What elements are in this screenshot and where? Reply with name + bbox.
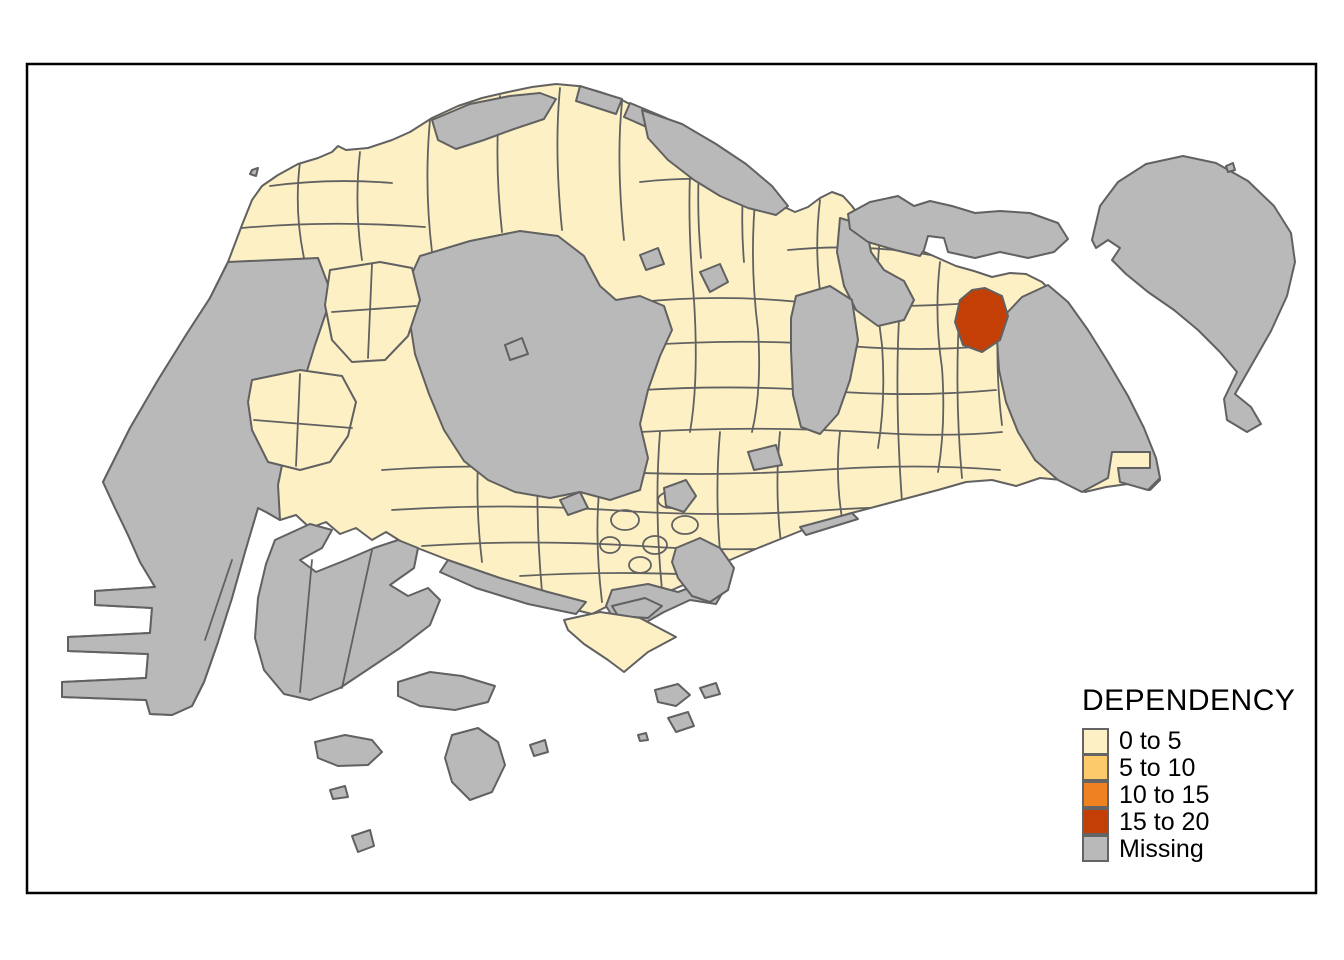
legend-item: Missing <box>1082 836 1330 863</box>
legend-label: Missing <box>1119 836 1204 863</box>
screenshot-root: DEPENDENCY 0 to 5 5 to 10 10 to 15 15 to… <box>0 0 1344 960</box>
legend-rows: 0 to 5 5 to 10 10 to 15 15 to 20 Missing <box>1082 728 1330 863</box>
legend-label: 10 to 15 <box>1119 782 1209 809</box>
legend-label: 5 to 10 <box>1119 755 1195 782</box>
island-sudong <box>315 735 382 766</box>
legend-item: 0 to 5 <box>1082 728 1330 755</box>
legend-label: 0 to 5 <box>1119 728 1182 755</box>
legend-swatch-15-20 <box>1082 808 1109 835</box>
legend-swatch-5-10 <box>1082 754 1109 781</box>
legend-label: 15 to 20 <box>1119 809 1209 836</box>
legend-item: 15 to 20 <box>1082 809 1330 836</box>
legend-swatch-missing <box>1082 835 1109 862</box>
legend-swatch-10-15 <box>1082 781 1109 808</box>
legend-item: 10 to 15 <box>1082 782 1330 809</box>
legend-item: 5 to 10 <box>1082 755 1330 782</box>
legend: DEPENDENCY 0 to 5 5 to 10 10 to 15 15 to… <box>1080 684 1330 863</box>
legend-title: DEPENDENCY <box>1082 684 1330 718</box>
legend-swatch-0-5 <box>1082 728 1109 755</box>
